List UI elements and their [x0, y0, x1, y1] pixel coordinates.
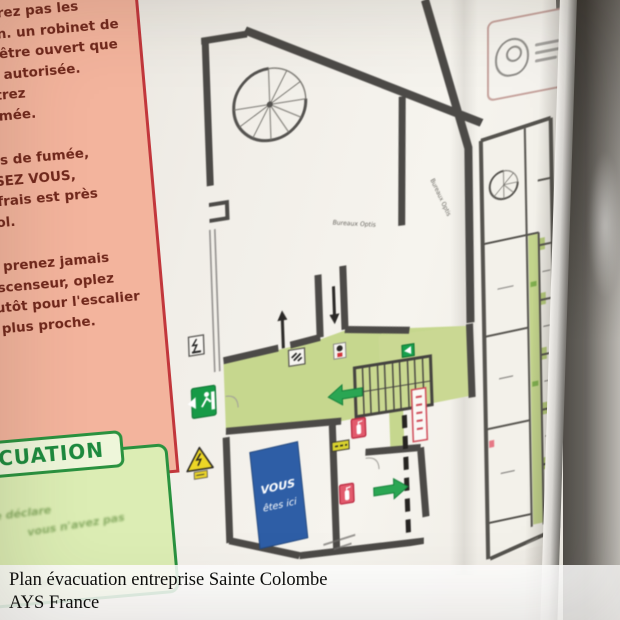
- spiral-staircase-icon: [232, 63, 307, 146]
- caption-subtitle: AYS France: [9, 592, 620, 615]
- instruction-paragraph: combrez pas les uation. un robinet de pe…: [0, 0, 137, 130]
- window-wall: [210, 229, 220, 372]
- exit-arrow-sign-icon: [402, 344, 414, 358]
- flow-arrow-up-icon: [277, 310, 288, 349]
- exit-sign-icon: [187, 385, 216, 419]
- room-label: Bureaux Optis: [428, 177, 452, 217]
- caption-title: Plan évacuation entreprise Sainte Colomb…: [9, 569, 620, 592]
- flow-arrow-down-icon: [328, 286, 339, 325]
- section-dashed-wall: [404, 415, 408, 534]
- caption-bar: Plan évacuation entreprise Sainte Colomb…: [0, 565, 620, 620]
- legend-logo-icon: [495, 35, 529, 80]
- electrical-hazard-triangle-icon: [186, 446, 213, 481]
- you-are-here-sign: VOUS êtes ici: [250, 442, 308, 549]
- corridor-spur: [389, 407, 404, 447]
- wall-reflection: [588, 150, 620, 300]
- wall-hook: [209, 202, 228, 221]
- pictogram-sign-icon: [288, 348, 305, 366]
- instruction-paragraph: n cas de fumée, AISSEZ VOUS, air frais e…: [0, 139, 146, 236]
- room-label: Bureaux Optis: [332, 219, 377, 228]
- evacuation-text-fragment: se déclare: [0, 503, 52, 524]
- instruction-paragraph: Ne prenez jamais l'ascenseur, oplez plut…: [0, 244, 156, 341]
- emergency-light-icon: [333, 342, 346, 359]
- fire-extinguisher-icon: [351, 417, 366, 438]
- exit-arrow-right-icon: [374, 477, 409, 502]
- inset-extinguisher-icon: [489, 440, 494, 448]
- fire-extinguisher-icon: [339, 483, 354, 504]
- photo-of-evacuation-plan: ✱ combrez pas les uation. un robinet de …: [0, 0, 620, 620]
- hose-reel-sign-icon: [412, 388, 428, 442]
- diagonal-walls: [245, 0, 489, 357]
- main-floor-plan: VOUS êtes ici Bureaux Optis Bureaux Opti…: [165, 0, 516, 582]
- electrical-panel-sign-icon: [188, 335, 204, 356]
